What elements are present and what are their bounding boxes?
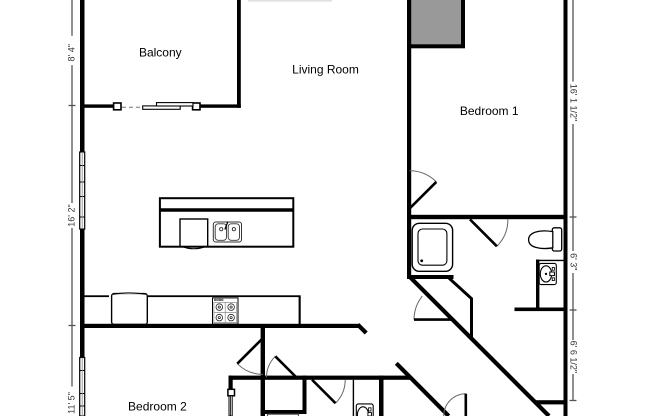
svg-text:16' 2": 16' 2" [67, 204, 77, 226]
svg-text:Bedroom 2: Bedroom 2 [128, 400, 187, 414]
svg-text:16' 1 1/2": 16' 1 1/2" [569, 84, 579, 121]
svg-text:6' 6 1/2": 6' 6 1/2" [569, 341, 579, 373]
svg-text:Balcony: Balcony [139, 46, 182, 60]
svg-text:8' 4": 8' 4" [67, 44, 77, 61]
svg-text:Bedroom 1: Bedroom 1 [460, 104, 519, 118]
svg-text:Living Room: Living Room [292, 62, 359, 76]
svg-text:6' 3": 6' 3" [569, 253, 579, 270]
svg-text:11' 5": 11' 5" [67, 392, 77, 414]
